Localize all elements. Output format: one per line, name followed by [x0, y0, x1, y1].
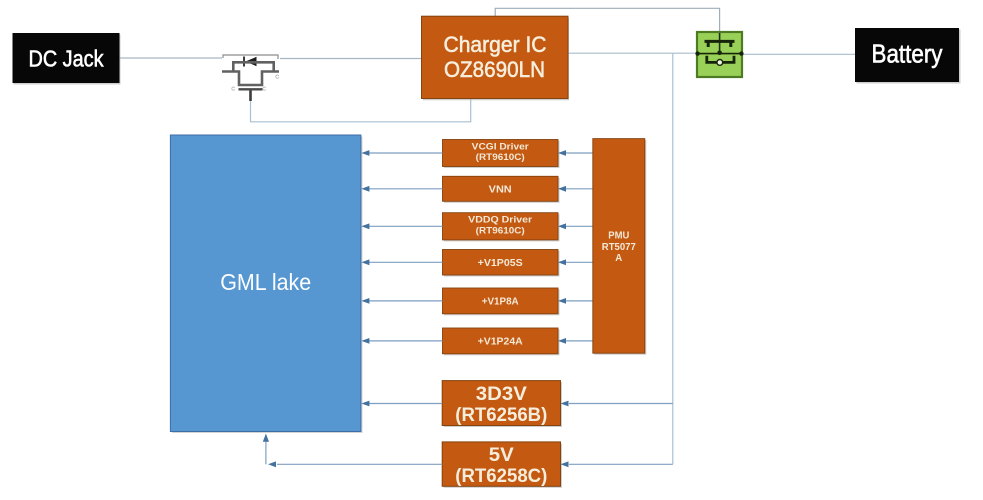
svg-text:VNN: VNN	[489, 184, 512, 195]
svg-text:+V1P8A: +V1P8A	[482, 296, 519, 307]
svg-text:VCGI Driver: VCGI Driver	[472, 141, 529, 152]
svg-text:RT5077: RT5077	[602, 241, 636, 253]
svg-text:(RT6256B): (RT6256B)	[455, 405, 547, 426]
svg-text:GML lake: GML lake	[220, 269, 311, 295]
svg-text:(RT6258C): (RT6258C)	[455, 466, 547, 487]
svg-text:+V1P05S: +V1P05S	[478, 258, 523, 269]
svg-text:(RT9610C): (RT9610C)	[476, 225, 525, 236]
svg-text:DC Jack: DC Jack	[29, 46, 104, 72]
svg-text:5V: 5V	[489, 445, 514, 466]
svg-text:PMU: PMU	[608, 230, 629, 242]
svg-text:OZ8690LN: OZ8690LN	[444, 57, 545, 82]
svg-text:(RT9610C): (RT9610C)	[476, 152, 525, 163]
svg-text:Battery: Battery	[872, 39, 943, 69]
svg-text:A: A	[615, 252, 622, 264]
svg-text:Charger IC: Charger IC	[444, 32, 547, 57]
svg-text:+V1P24A: +V1P24A	[478, 336, 523, 347]
svg-text:3D3V: 3D3V	[476, 384, 527, 405]
svg-text:VDDQ Driver: VDDQ Driver	[468, 215, 532, 226]
